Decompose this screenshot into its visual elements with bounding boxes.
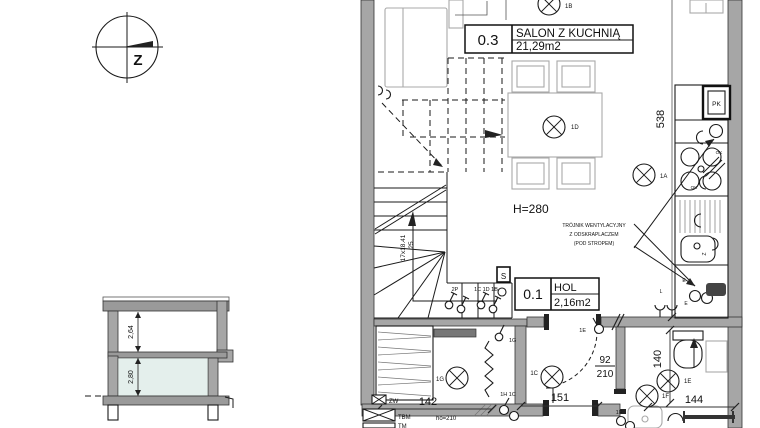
vent-note-line1: TRÓJNIK WENTYLACYJNY [562, 222, 626, 229]
toilet-tank [673, 331, 703, 340]
north-label: Z [133, 52, 142, 69]
stairs: 17x18.41 25 [374, 58, 512, 318]
bath-cabinet [706, 341, 727, 372]
socket-l-label: L [660, 289, 663, 295]
sink-label: Z [702, 252, 708, 255]
light-1B: 1B [538, 0, 572, 15]
section-lower-dim: 2,80 [128, 370, 135, 384]
zw-label: ZW [389, 399, 399, 405]
tm-label: TM [398, 424, 407, 428]
sofa [385, 8, 447, 87]
dim-142: 142 [419, 396, 437, 408]
socket-icon [386, 90, 391, 99]
stair-steps-label: 17x18.41 [400, 234, 407, 261]
switch-2P-label: 2P [452, 287, 459, 293]
light-1D-label: 1D [571, 125, 579, 131]
room-hol-area: 2,16m2 [554, 297, 591, 309]
switch-1C1D1B-label: 1C 1D 1B [474, 287, 498, 293]
s-box-label: S [501, 272, 506, 281]
bathroom [628, 331, 735, 428]
light-1A-label: 1A [660, 174, 667, 180]
room-salon-area: 21,29m2 [516, 41, 561, 53]
light-1C-label: 1C [530, 371, 538, 377]
north-arrow: Z [92, 12, 163, 83]
building-section: 2,64 2,80 [85, 297, 233, 420]
socket-e-label: E [684, 301, 688, 307]
room-salon-name: SALON Z KUCHNIĄ [516, 28, 620, 40]
room-label-salon: 0.3 SALON Z KUCHNIĄ 21,29m2 [465, 25, 633, 53]
light-1B-label: 1B [565, 4, 572, 10]
socket-icon [655, 305, 665, 310]
north-arrow-wedge [126, 41, 153, 47]
room-hol-code: 0.1 [523, 286, 543, 302]
dim-144: 144 [685, 394, 703, 406]
door-size: 92 210 [595, 355, 615, 380]
stair-width-label: 25 [408, 241, 415, 249]
vent-note-line2: Z ODSKRAPLACZEM [569, 232, 618, 238]
socket-icon [378, 86, 383, 95]
room-label-hol: 0.1 HOL 2,16m2 [515, 278, 599, 310]
washer-valve [706, 283, 726, 296]
switch-1H1C-label: 1H 1C [500, 392, 516, 398]
ceiling-height-label: H=280 [513, 202, 549, 216]
kitchen-sink: Z [680, 200, 720, 262]
ho-label: ho=210 [436, 416, 457, 422]
socket-ok-label: OK [716, 150, 724, 155]
room-salon-code: 0.3 [478, 32, 499, 49]
pk-label: PK [712, 101, 721, 108]
light-1E: 1E [657, 370, 691, 392]
dim-538: 538 [655, 110, 667, 128]
light-1A: 1A [633, 164, 667, 186]
dim-151: 151 [551, 392, 569, 404]
light-1F-label: 1F [662, 394, 669, 400]
socket-ok-icon [697, 131, 704, 144]
floor-plan-sheet: Z 2,64 2,80 [0, 0, 760, 428]
section-upper-dim: 2,64 [128, 325, 135, 339]
switch-1E-label: 1E [579, 328, 586, 334]
radiator [434, 329, 476, 337]
light-1C: 1C [530, 366, 563, 388]
switch-1F-label: 1F [616, 410, 623, 416]
light-1E-label: 1E [684, 379, 691, 385]
switch-1G-label: 1G [509, 338, 516, 344]
flex-connection [485, 341, 493, 397]
light-1G-label: 1G [436, 377, 444, 383]
dim-140: 140 [652, 350, 664, 368]
door-height: 210 [597, 369, 614, 380]
towel-hook-icon [668, 414, 683, 422]
vent-point [710, 125, 723, 138]
vent-note-line3: (POD STROPEM) [574, 241, 615, 247]
light-1G: 1G [436, 367, 468, 389]
toilet-bowl [674, 340, 702, 368]
socket-ok2-label: OK [691, 185, 699, 190]
vent-note: TRÓJNIK WENTYLACYJNY Z ODSKRAPLACZEM (PO… [562, 139, 714, 286]
door-width: 92 [599, 355, 611, 366]
room-hol-name: HOL [554, 282, 577, 294]
light-1D: 1D [543, 116, 579, 138]
tbm-label: TBM [398, 415, 411, 421]
